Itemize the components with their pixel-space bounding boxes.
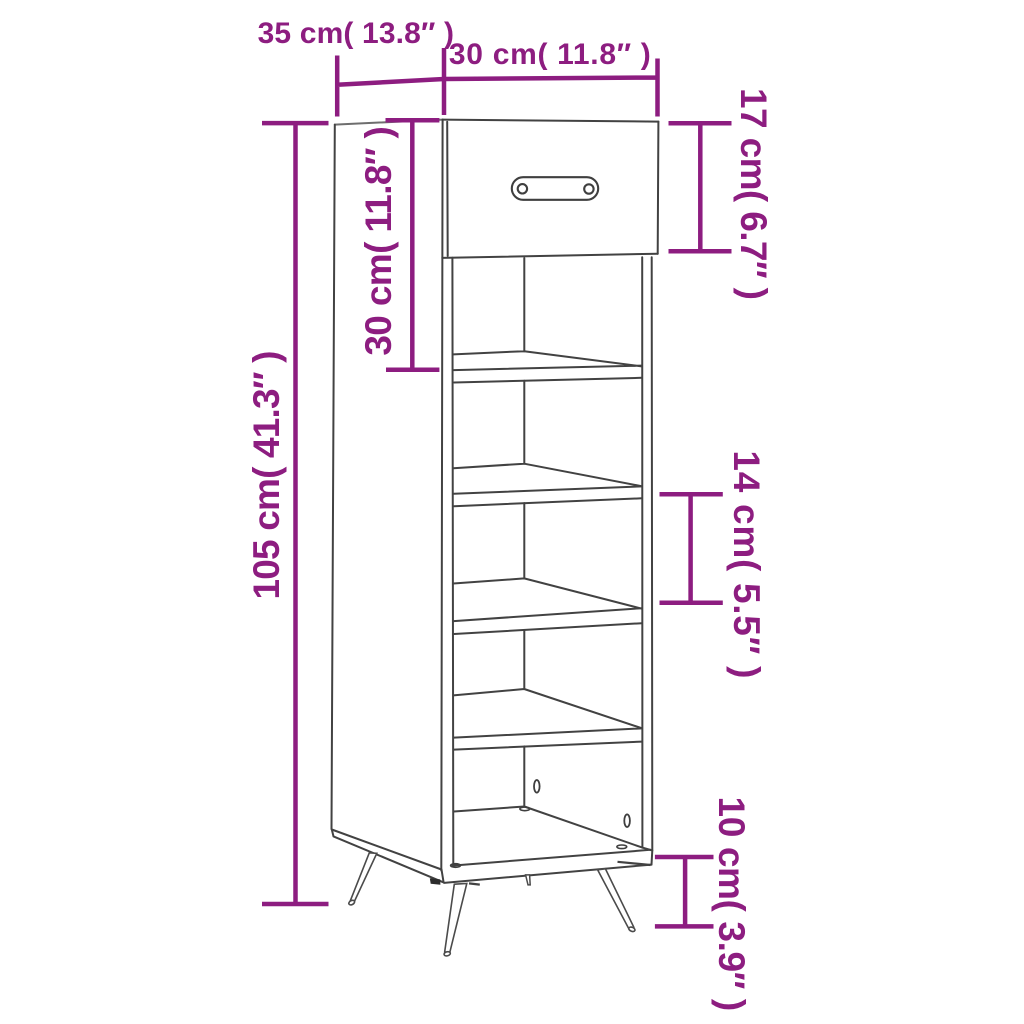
svg-text:105 cm( 41.3″ ): 105 cm( 41.3″ ) xyxy=(246,351,287,600)
svg-text:17 cm( 6.7″ ): 17 cm( 6.7″ ) xyxy=(733,88,774,300)
svg-text:14 cm( 5.5″ ): 14 cm( 5.5″ ) xyxy=(726,450,767,678)
svg-text:30 cm( 11.8″ ): 30 cm( 11.8″ ) xyxy=(358,126,399,356)
svg-text:35 cm( 13.8″ ): 35 cm( 13.8″ ) xyxy=(258,17,454,50)
svg-text:30 cm( 11.8″ ): 30 cm( 11.8″ ) xyxy=(449,38,651,71)
svg-text:10 cm( 3.9″ ): 10 cm( 3.9″ ) xyxy=(711,797,752,1012)
